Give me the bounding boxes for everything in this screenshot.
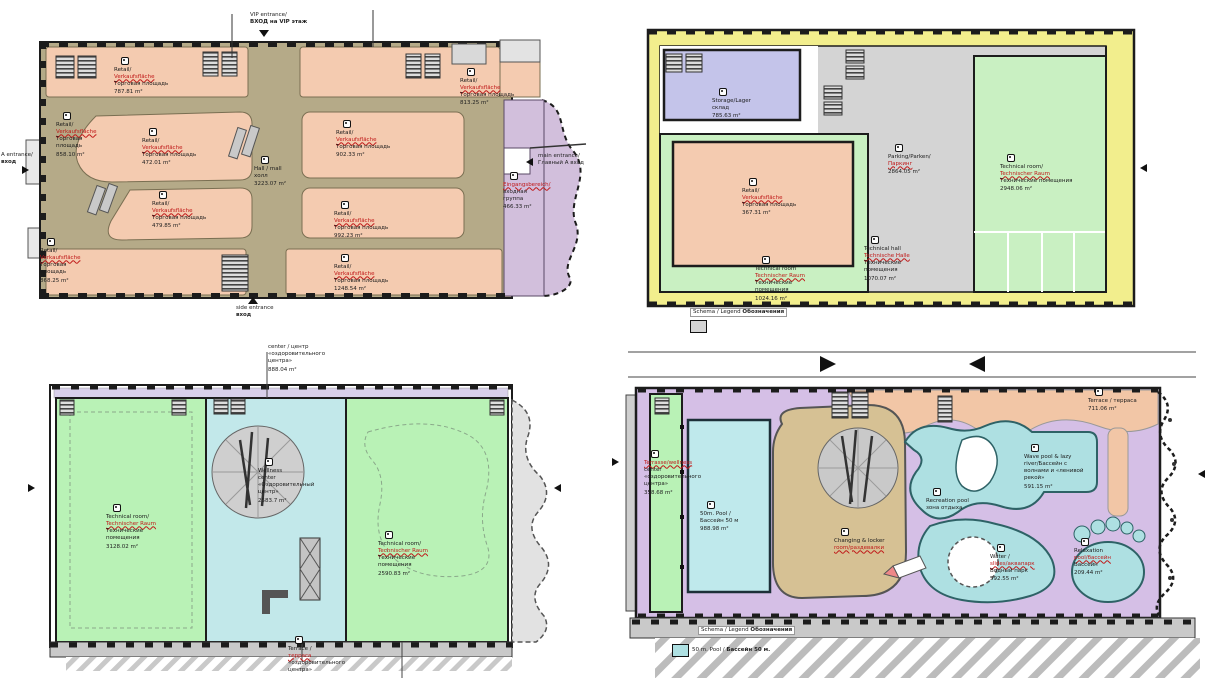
label-line-red: Verkaufsfläche [334,218,392,225]
entrance-arrow-icon [22,166,29,174]
room-marker-icon [841,528,849,536]
label-line: ВХОД на VIP этаж [250,19,320,26]
room-area: 209.44 m² [1074,570,1128,577]
room-label-wellness: Wellness center «Оздоровительный центр» … [258,458,332,505]
entrance-arrow-icon [526,158,533,166]
entrance-arrow-icon [1198,470,1205,478]
room-label-retail: Retail/ Verkaufsfläche Торговая площадь … [334,254,392,294]
label-line: Retail/ [334,211,392,218]
room-marker-icon [1007,154,1015,162]
bl-terrace-scallop [512,400,549,642]
label-line-red: Technischer Raum [755,273,825,280]
label-line-red: Паркинг [888,161,948,168]
room-marker-icon [385,531,393,539]
tl-retail-bottom-right [286,249,502,295]
room-label-terrace: Terrace / терраса 711.06 m² [1088,388,1148,413]
room-label-parking: Parking/Parken/ Паркинг 2864.05 m² [888,144,948,176]
label-line-red: Verkaufsfläche [336,137,394,144]
label-line: Торговая площадь [152,215,210,222]
label-line: Торговая площадь [334,225,392,232]
room-label-pool: 50m. Pool / Бассейн 50 м 988.98 m² [700,501,750,533]
label-line: Retail/ [334,264,392,271]
label-line: Water / [990,554,1050,561]
floor-plan-sheet: Retail/ Verkaufsfläche Торговая площадь … [0,0,1213,682]
legend-swatch [690,320,707,333]
room-area: 591.15 m² [1024,484,1092,491]
legend-label: Бассейн 50 м. [726,647,770,654]
label-line: Retail/ [460,78,518,85]
room-marker-icon [1081,538,1089,546]
label-line: Storage/Lager [712,98,762,105]
label-line: Технические помещения [1000,178,1090,185]
room-label-recreation: Recreation pool зона отдыха [926,488,980,513]
room-label-hall: Hall / mall холл 3223.07 m² [254,156,304,188]
room-area: 992.23 m² [334,233,392,240]
entrance-arrow-icon [28,484,35,492]
legend-title: Schema / Legend Обозначения [698,626,795,635]
vip-entrance-annotation: VIP entrance/ ВХОД на VIP этаж [250,12,320,27]
bl-tech-right [346,398,508,642]
section-arrow-right [820,356,836,372]
label-line: Retail/ [742,188,800,195]
room-label-retail: Retail/ Verkaufsfläche Торговая площадь … [114,57,172,97]
label-line: 50m. Pool / [700,511,750,518]
label-line-red: Verkaufsfläche [152,208,210,215]
room-marker-icon [749,178,757,186]
entrance-arrow-icon [248,297,258,304]
section-arrow-left [969,356,985,372]
room-marker-icon [467,68,475,76]
room-area: 868.25 m² [40,278,90,285]
room-area: 902.33 m² [336,152,394,159]
room-area: 785.63 m² [712,113,762,120]
room-label-relaxation: Relaxation pool/бассейн Бассейн 209.44 m… [1074,538,1128,578]
room-marker-icon [510,172,518,180]
room-label-storage: Storage/Lager склад 785.63 m² [712,88,762,120]
room-label-water-park: Water / slides/аквапарк Водный парк 592.… [990,544,1050,584]
label-line: зона отдыха [926,505,980,512]
label-line-red: Verkaufsfläche [742,195,800,202]
room-label-technical: Technical hall Technische Halle Техничес… [864,236,934,283]
label-line-red: Verkaufsfläche [114,74,172,81]
room-marker-icon [159,191,167,199]
legend-label: 50 m. Pool / [692,647,725,654]
label-line: Технические помещения [378,555,448,569]
entrance-arrow-icon [1140,164,1147,172]
label-line: Торговая площадь [742,202,800,209]
room-label-retail: Retail/ Verkaufsfläche Торговая площадь … [742,178,800,218]
room-marker-icon [63,112,71,120]
room-area: 2583.7 m² [258,498,332,505]
label-line: Retail/ [114,67,172,74]
room-area: 1024.16 m² [755,296,825,303]
room-label-center: center / центр «оздоровительного центра»… [268,344,328,374]
room-marker-icon [47,238,55,246]
label-line: center «Оздоровительный центр» [258,475,332,496]
room-marker-icon [295,636,303,644]
room-marker-icon [341,201,349,209]
room-area: 813.25 m² [460,100,518,107]
room-marker-icon [261,156,269,164]
label-line: Торговая площадь [336,144,394,151]
label-line: Бассейн [1074,562,1128,569]
room-marker-icon [762,256,770,264]
room-label-technical: Technical room/ Technischer Raum Техниче… [106,504,176,551]
room-marker-icon [265,458,273,466]
room-label-changing: Changing & locker room/раздевалки [834,528,894,553]
room-label-entrance: Eingangsbereich/ входная группа 466.33 m… [503,172,543,212]
label-line: Торговая площадь [40,262,90,276]
label-line: Terrace / [288,646,368,653]
label-line: Бассейн 50 м [700,518,750,525]
room-marker-icon [341,254,349,262]
label-line: «оздоровительного центра» [288,660,368,674]
label-line-red: Technischer Raum [1000,171,1090,178]
room-area: 711.06 m² [1088,406,1148,413]
label-line: Технические помещения [755,280,825,294]
room-area: 2864.05 m² [888,169,948,176]
main-entrance-annotation: main entrance/ Главный А вход [538,153,596,168]
room-marker-icon [707,501,715,509]
label-line-red: Terrasse/wellness [644,460,690,467]
entrance-arrow-icon [259,30,269,37]
label-line: Водный парк [990,568,1050,575]
label-line: Relaxation [1074,548,1128,555]
label-line: склад [712,105,762,112]
label-line: Retail/ [336,130,394,137]
br-legend-row-pool: 50 m. Pool / Бассейн 50 м. [672,641,770,657]
room-marker-icon [113,504,121,512]
room-marker-icon [719,88,727,96]
label-line: center «оздоровительного центра» [644,467,690,488]
label-line: Changing & locker [834,538,894,545]
room-marker-icon [933,488,941,496]
room-label-terrace: Terrasse/wellness center «оздоровительно… [644,450,690,497]
label-line: river/Бассейн с волнами и «ленивой рекой… [1024,461,1092,482]
label-line: Technical room [755,266,825,273]
room-area: 3223.07 m² [254,181,304,188]
room-area: 358.68 m² [644,490,690,497]
room-label-wave-pool: Wave pool & lazy river/Бассейн с волнами… [1024,444,1092,491]
label-line-red: Verkaufsfläche [460,85,518,92]
label-line: Wellness [258,468,332,475]
label-line: Terrace / терраса [1088,398,1148,405]
room-label-terrace: Terrace / терраса «оздоровительного цент… [288,636,368,676]
room-marker-icon [121,57,129,65]
legend-title: Schema / Legend Обозначения [690,308,787,317]
label-line: Retail/ [56,122,106,129]
room-marker-icon [1031,444,1039,452]
room-area: 1248.54 m² [334,286,392,293]
label-line-red: pool/бассейн [1074,555,1128,562]
room-marker-icon [871,236,879,244]
label-line-red: Verkaufsfläche [334,271,392,278]
label-line: Technical room/ [378,541,448,548]
label-line-red: терраса [288,653,368,660]
label-line: Технические помещения [106,528,176,542]
room-label-retail: Retail/ Verkaufsfläche Торговая площадь … [334,201,392,241]
label-line: Hall / mall [254,166,304,173]
label-line: Wave pool & lazy [1024,454,1092,461]
label-line: Retail/ [40,248,90,255]
label-line: входная группа [503,189,543,203]
label-line: Торговая площадь [460,92,518,99]
label-line: Technical hall [864,246,934,253]
room-marker-icon [1095,388,1103,396]
label-line: вход [236,312,296,319]
label-line-red: Technische Halle [864,253,934,260]
label-line: Торговая площадь [114,81,172,88]
label-line: side entrance [236,305,296,312]
room-area: 472.01 m² [142,160,200,167]
room-label-retail: Retail/ Verkaufsfläche Торговая площадь … [56,112,106,159]
label-line-red: Verkaufsfläche [142,145,200,152]
label-line: «оздоровительного центра» [268,351,328,365]
label-line: Торговая площадь [334,278,392,285]
room-marker-icon [149,128,157,136]
label-line: Retail/ [142,138,200,145]
room-label-retail: Retail/ Verkaufsfläche Торговая площадь … [336,120,394,160]
br-legend: Schema / Legend Обозначения [698,626,795,635]
room-area: 2948.06 m² [1000,186,1090,193]
room-label-technical: Technical room/ Technischer Raum Техниче… [1000,154,1090,194]
room-area: 2590.83 m² [378,571,448,578]
room-label-retail: Retail/ Verkaufsfläche Торговая площадь … [460,68,518,108]
label-line-red: Verkaufsfläche [40,255,90,262]
label-line-red: slides/аквапарк [990,561,1050,568]
bl-elevator-block [300,538,320,600]
room-area: 888.04 m² [268,367,328,374]
br-terrace-strip [650,394,682,612]
side-entrance-annotation: side entrance вход [236,305,296,320]
label-line: вход [1,159,35,166]
room-area: 3128.02 m² [106,544,176,551]
room-area: 367.31 m² [742,210,800,217]
label-line: Торговая площадь [142,152,200,159]
label-line-red: Technischer Raum [378,548,448,555]
room-marker-icon [997,544,1005,552]
entrance-arrow-icon [612,458,619,466]
label-line: Technical room/ [1000,164,1090,171]
label-line-red: Verkaufsfläche [56,129,106,136]
label-line: Технические помещения [864,260,934,274]
room-area: 592.55 m² [990,576,1050,583]
room-area: 858.10 m² [56,152,106,159]
label-line: Главный А вход [538,160,596,167]
label-line-red: room/раздевалки [834,545,894,552]
label-line: VIP entrance/ [250,12,320,19]
left-entrance-annotation: A entrance/ вход [1,152,35,167]
room-label-technical: Technical room/ Technischer Raum Техниче… [378,531,448,578]
plan-top-left [26,10,586,298]
room-area: 787.81 m² [114,89,172,96]
entrance-arrow-icon [554,484,561,492]
room-marker-icon [895,144,903,152]
room-marker-icon [651,450,659,458]
label-line: Retail/ [152,201,210,208]
label-line: center / центр [268,344,328,351]
label-line: Technical room/ [106,514,176,521]
room-area: 1070.07 m² [864,276,934,283]
room-area: 479.85 m² [152,223,210,230]
room-area: 988.98 m² [700,526,750,533]
room-area: 466.33 m² [503,204,543,211]
label-line: Parking/Parken/ [888,154,948,161]
label-line: Торговая площадь [56,136,106,150]
label-line-red: Technischer Raum [106,521,176,528]
room-marker-icon [343,120,351,128]
label-line-red: Eingangsbereich/ [503,182,543,189]
legend-swatch-pool [672,644,689,657]
tl-entrance-blob [542,100,581,296]
room-label-retail: Retail/ Verkaufsfläche Торговая площадь … [142,128,200,168]
room-label-retail: Retail/ Verkaufsfläche Торговая площадь … [152,191,210,231]
tr-legend: Schema / Legend Обозначения [690,308,787,333]
label-line: холл [254,173,304,180]
label-line: Recreation pool [926,498,980,505]
room-label-technical: Technical room Technischer Raum Техничес… [755,256,825,303]
label-line: A entrance/ [1,152,35,159]
room-label-retail: Retail/ Verkaufsfläche Торговая площадь … [40,238,90,285]
